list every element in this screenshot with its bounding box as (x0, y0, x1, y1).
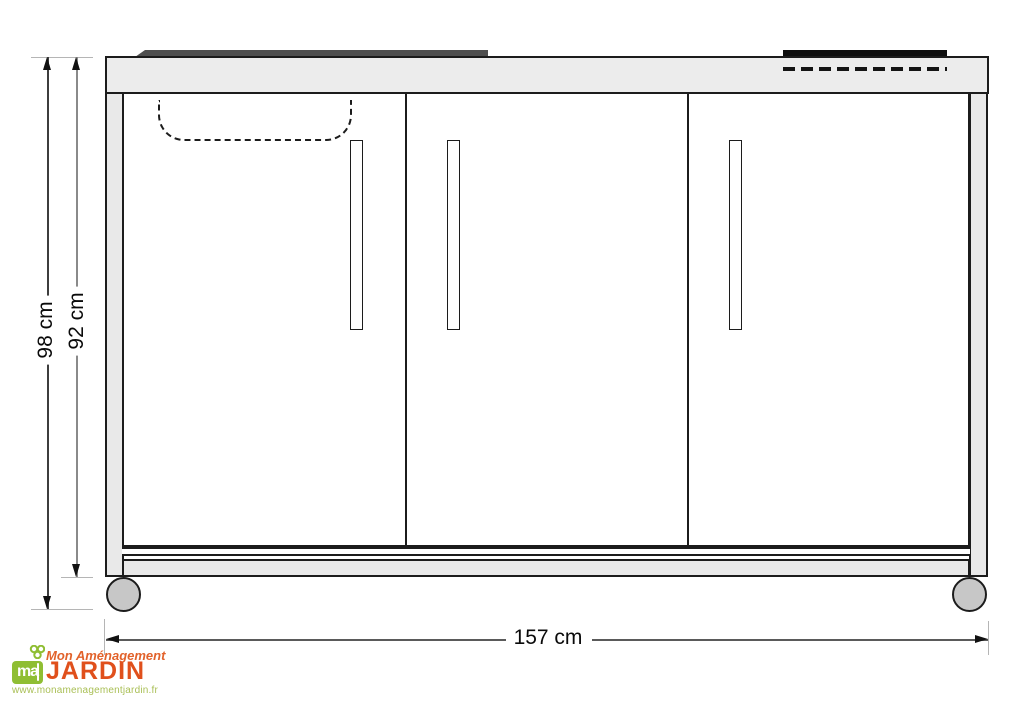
arrow-up-icon (72, 57, 80, 70)
extension-line-98-bottom (31, 609, 93, 610)
door-divider-1 (405, 93, 407, 556)
clover-icon (29, 645, 45, 659)
brand-name-main: JARDIN (46, 657, 145, 686)
arrow-down-icon (72, 564, 80, 577)
cabinet-doors-area (122, 92, 970, 547)
product-dimension-diagram: 98 cm 92 cm 157 cm Mon Aménagement ma JA… (0, 0, 1024, 705)
sink-bowl-dashed-outline (158, 100, 352, 141)
countertop (105, 56, 989, 94)
wheel-right (952, 577, 987, 612)
cooktop-dashed-line (783, 67, 947, 71)
wheel-left (106, 577, 141, 612)
dimension-line-157-left (106, 639, 506, 641)
arrow-up-icon (43, 57, 51, 70)
door-handle-1 (350, 140, 363, 330)
brand-logo: Mon Aménagement ma JARDIN www.monamenage… (12, 644, 162, 700)
door-handle-3 (729, 140, 742, 330)
right-side-panel (969, 92, 988, 577)
dimension-label-height-overall: 98 cm (33, 295, 59, 364)
brand-monogram: ma (12, 661, 43, 684)
dimension-label-height-body: 92 cm (64, 286, 90, 355)
arrow-down-icon (43, 596, 51, 609)
brand-monogram-text: ma (17, 663, 38, 680)
arrow-left-icon (106, 635, 119, 643)
extension-line-92-bottom (61, 577, 93, 578)
monogram-stroke (37, 663, 40, 681)
left-side-panel (105, 92, 124, 577)
arrow-right-icon (975, 635, 988, 643)
extension-line-width-right (988, 621, 989, 655)
brand-website: www.monamenagementjardin.fr (12, 685, 158, 696)
door-divider-2 (687, 93, 689, 556)
plinth (122, 559, 970, 577)
dimension-label-width-overall: 157 cm (508, 625, 589, 651)
dimension-line-157-right (592, 639, 988, 641)
door-handle-2 (447, 140, 460, 330)
bottom-rail (122, 547, 970, 556)
extension-line-top (31, 57, 93, 58)
